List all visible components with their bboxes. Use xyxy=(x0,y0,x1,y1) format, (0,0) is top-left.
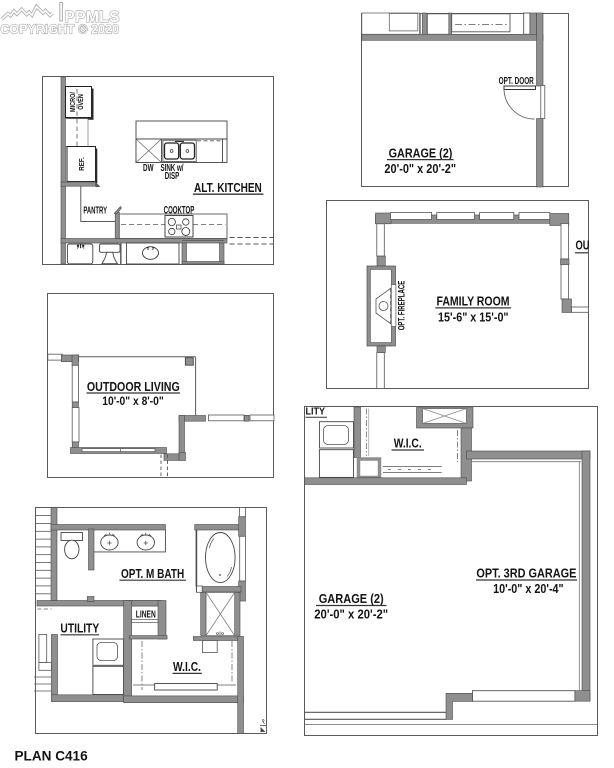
svg-text:OU: OU xyxy=(576,239,590,253)
svg-text:ALT. KITCHEN: ALT. KITCHEN xyxy=(194,181,262,196)
svg-text:FAMILY ROOM: FAMILY ROOM xyxy=(436,293,509,308)
svg-text:LINEN: LINEN xyxy=(136,608,156,620)
svg-text:DW: DW xyxy=(143,161,154,173)
svg-text:GARAGE (2): GARAGE (2) xyxy=(389,147,453,161)
svg-text:COPYRIGHT © 2020: COPYRIGHT © 2020 xyxy=(0,22,119,36)
svg-text:UTILITY: UTILITY xyxy=(60,621,99,635)
svg-text:15'-6" x 15'-0": 15'-6" x 15'-0" xyxy=(438,310,509,325)
svg-text:OPT. M BATH: OPT. M BATH xyxy=(121,567,184,582)
svg-text:PANTRY: PANTRY xyxy=(83,205,107,216)
svg-text:MICRO/: MICRO/ xyxy=(69,92,77,112)
svg-text:LITY: LITY xyxy=(305,406,325,418)
svg-text:OVEN: OVEN xyxy=(77,94,85,110)
svg-text:REF.: REF. xyxy=(79,157,87,171)
svg-text:OUTDOOR LIVING: OUTDOOR LIVING xyxy=(87,379,180,394)
svg-text:20'-0" x 20'-2": 20'-0" x 20'-2" xyxy=(384,161,456,176)
svg-text:20'-0" x 20'-2": 20'-0" x 20'-2" xyxy=(314,607,388,622)
svg-text:10'-0" x 8'-0": 10'-0" x 8'-0" xyxy=(102,395,163,408)
svg-text:PLAN C416: PLAN C416 xyxy=(15,748,88,763)
svg-text:DISP: DISP xyxy=(165,169,180,181)
svg-text:W.I.C.: W.I.C. xyxy=(173,660,201,674)
svg-text:W.I.C.: W.I.C. xyxy=(394,436,422,450)
svg-text:OPT. 3RD GARAGE: OPT. 3RD GARAGE xyxy=(476,566,576,581)
svg-text:OPT. DOOR: OPT. DOOR xyxy=(499,74,534,86)
svg-text:10'-0" x 20'-4": 10'-0" x 20'-4" xyxy=(493,581,564,596)
svg-text:OPT. FIREPLACE: OPT. FIREPLACE xyxy=(396,281,407,331)
svg-text:GARAGE (2): GARAGE (2) xyxy=(319,591,384,606)
